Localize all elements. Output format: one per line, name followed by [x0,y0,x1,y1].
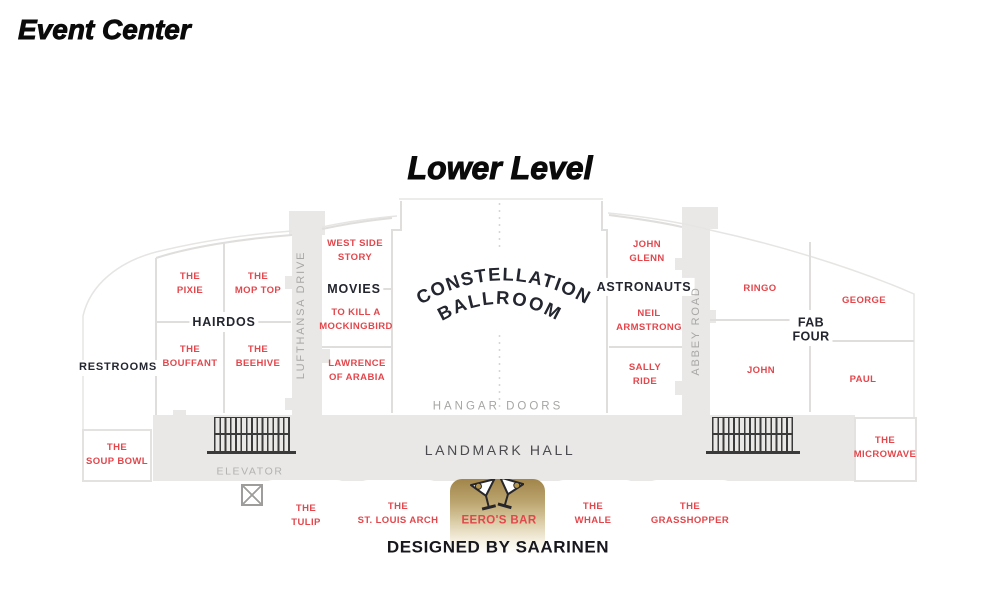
room-label-soup-bowl: THE SOUP BOWL [86,441,148,469]
stairs-icon [214,417,290,452]
group-label-fab-four: FAB FOUR [789,316,832,344]
area-label-elevator: ELEVATOR [216,464,283,479]
room-label-to-kill-a-mockingbird: TO KILL A MOCKINGBIRD [319,306,393,334]
room-label-west-side-story: WEST SIDE STORY [327,237,383,265]
group-label-movies: MOVIES [324,280,383,298]
room-label-beehive: THE BEEHIVE [236,343,281,371]
group-label-astronauts: ASTRONAUTS [594,278,695,296]
event-center-floor-plan-page: { "header": { "title": "Event Center", "… [0,0,984,589]
area-label-hangar-doors: HANGAR DOORS [433,399,564,416]
stairs-base-line [706,451,800,454]
martini-glasses-icon [470,479,524,513]
elevator-icon [241,484,263,506]
room-label-tulip: THE TULIP [291,502,320,530]
group-label-hairdos: HAIRDOS [189,313,258,331]
room-label-eeros-bar: EERO'S BAR [461,513,536,530]
room-label-st-louis-arch: THE ST. LOUIS ARCH [358,500,439,528]
stairs-icon [712,417,793,452]
room-label-paul: PAUL [850,373,877,387]
area-label-landmark-hall: LANDMARK HALL [425,440,576,460]
room-label-restrooms: RESTROOMS [76,360,160,376]
room-label-john: JOHN [747,364,775,378]
stairs-base-line [207,451,296,454]
room-label-ringo: RINGO [743,282,776,296]
room-label-pixie: THE PIXIE [177,270,203,298]
corridor-label-lufthansa-drive: LUFTHANSA DRIVE [294,251,310,379]
corridor-label-abbey-road: ABBEY ROAD [689,286,705,375]
room-label-sally-ride: SALLY RIDE [629,361,661,389]
room-label-mop-top: THE MOP TOP [235,270,281,298]
room-label-lawrence-of-arabia: LAWRENCE OF ARABIA [328,357,386,385]
room-label-microwave: THE MICROWAVE [854,434,917,462]
room-label-bouffant: THE BOUFFANT [163,343,218,371]
designed-by-note: DESIGNED BY SAARINEN [387,536,609,561]
room-label-grasshopper: THE GRASSHOPPER [651,500,729,528]
room-label-george: GEORGE [842,294,886,308]
room-label-whale: THE WHALE [575,500,612,528]
room-label-neil-armstrong: NEIL ARMSTRONG [616,307,682,335]
room-label-john-glenn: JOHN GLENN [629,238,664,266]
